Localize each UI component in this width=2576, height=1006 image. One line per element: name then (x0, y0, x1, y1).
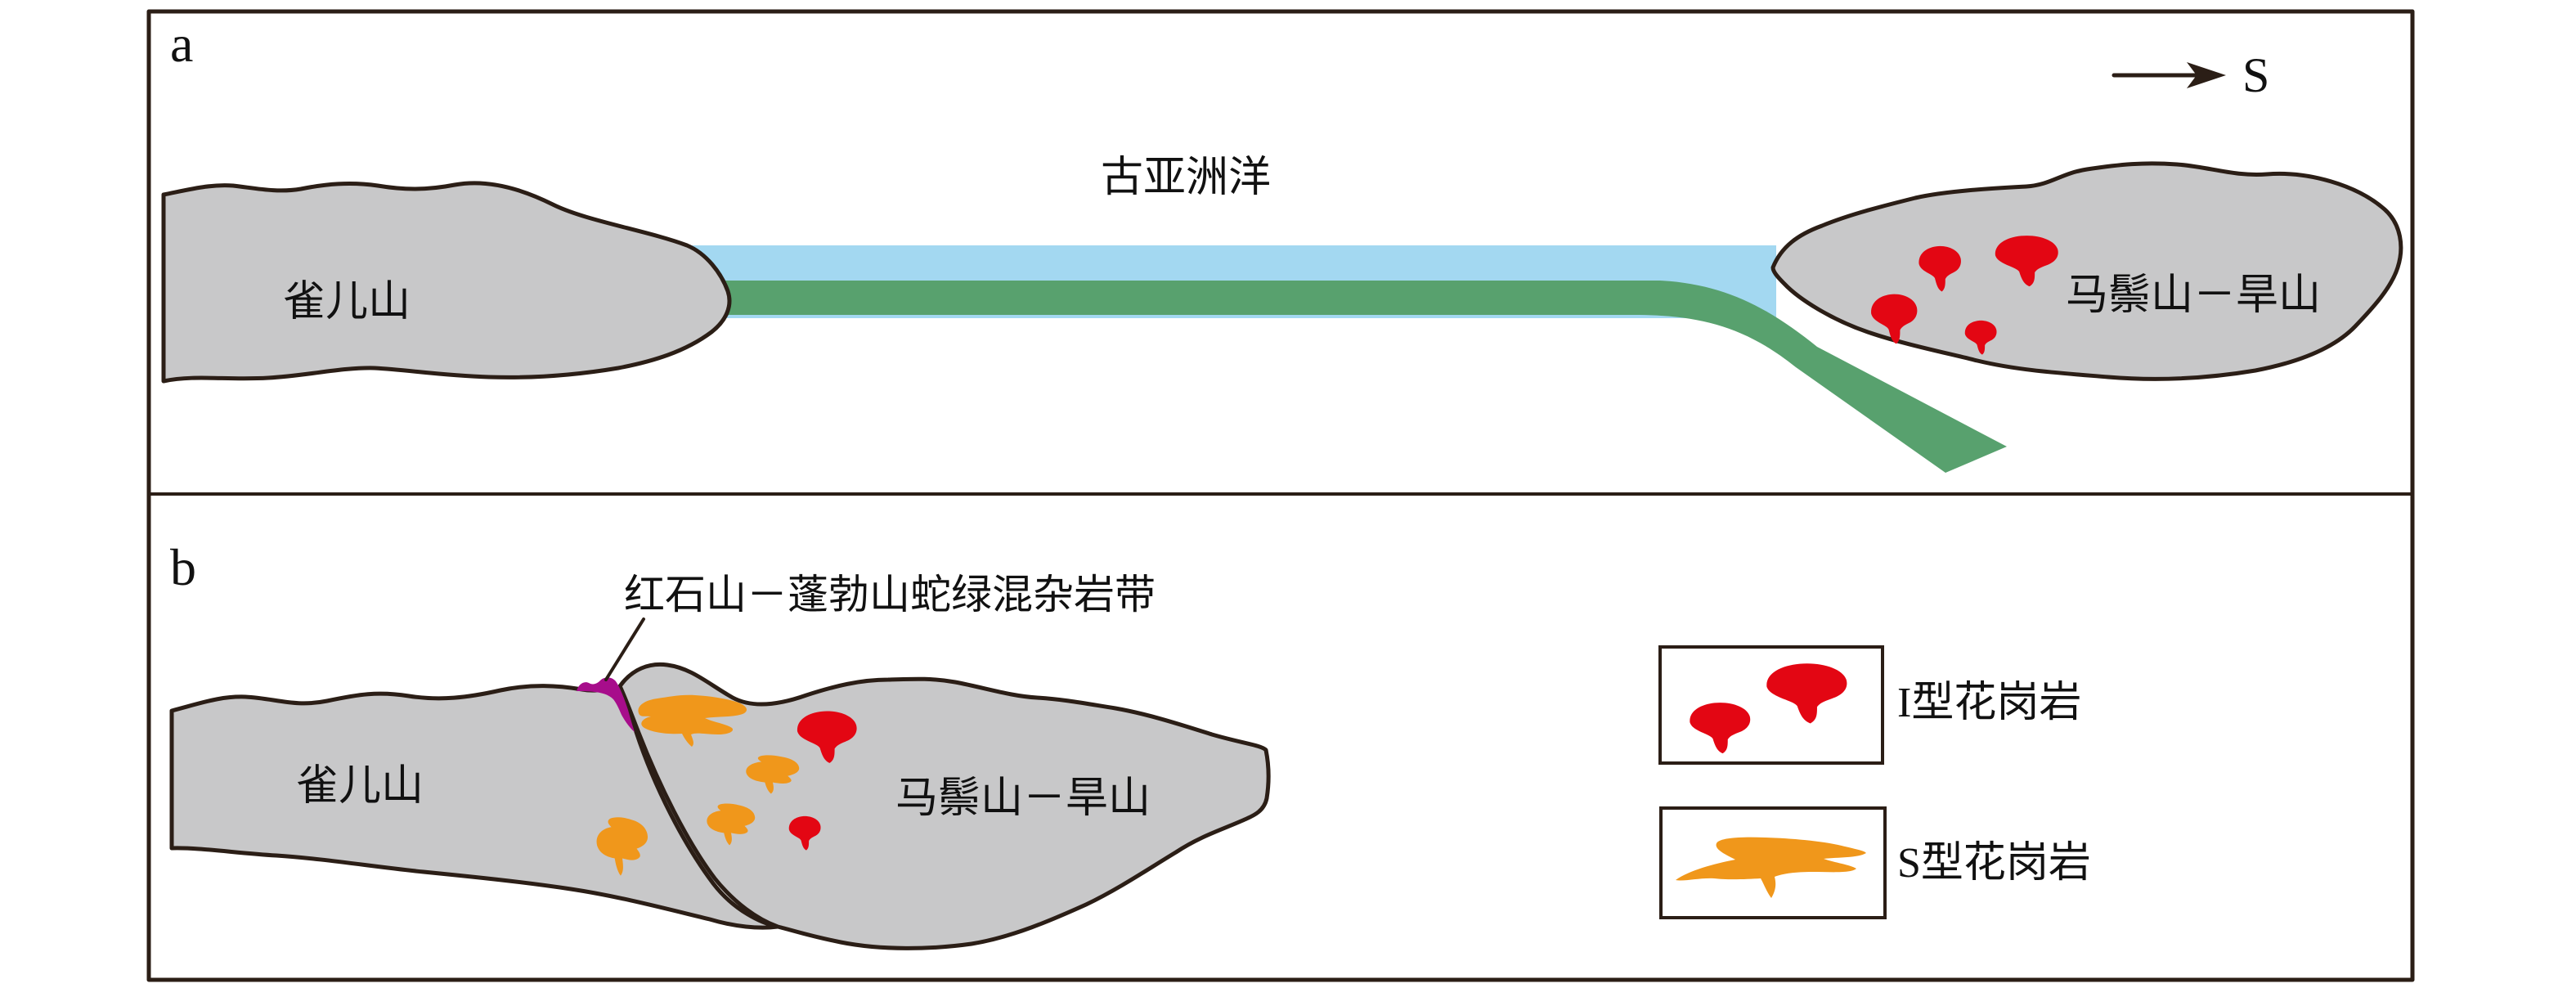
queershan-label-a: 雀儿山 (283, 279, 411, 326)
figure-canvas: a 古亚洲洋 雀儿山 马鬃山－旱山 S 红石山－蓬勃山蛇绿混杂岩带 b 雀儿山 (0, 0, 2576, 1006)
south-arrow-label: S (2242, 48, 2269, 102)
legend-label-s-type: S型花岗岩 (1897, 840, 2091, 887)
continent-queershan-a (164, 183, 729, 381)
legend-item-s-type: S型花岗岩 (1661, 808, 2091, 918)
panel-b-label: b (170, 538, 196, 596)
continent-mazongshan-a (1773, 164, 2401, 379)
legend-label-i-type: I型花岗岩 (1897, 680, 2081, 726)
legend-swatch-box-i (1660, 647, 1883, 763)
mazongshan-label-a: 马鬃山－旱山 (2066, 272, 2321, 319)
legend-item-i-type: I型花岗岩 (1660, 647, 2081, 763)
panel-a: a 古亚洲洋 雀儿山 马鬃山－旱山 S (164, 15, 2401, 473)
subducting-oceanic-slab (697, 281, 2007, 473)
panel-b: 红石山－蓬勃山蛇绿混杂岩带 b 雀儿山 马鬃山－旱山 (170, 538, 1268, 948)
south-arrow (2114, 62, 2226, 88)
panel-a-label: a (170, 15, 193, 73)
mazongshan-label-b: 马鬃山－旱山 (895, 775, 1151, 822)
ocean-label: 古亚洲洋 (1101, 155, 1271, 201)
suture-label: 红石山－蓬勃山蛇绿混杂岩带 (624, 572, 1156, 618)
legend: I型花岗岩 S型花岗岩 (1660, 647, 2091, 918)
queershan-label-b: 雀儿山 (296, 763, 424, 810)
